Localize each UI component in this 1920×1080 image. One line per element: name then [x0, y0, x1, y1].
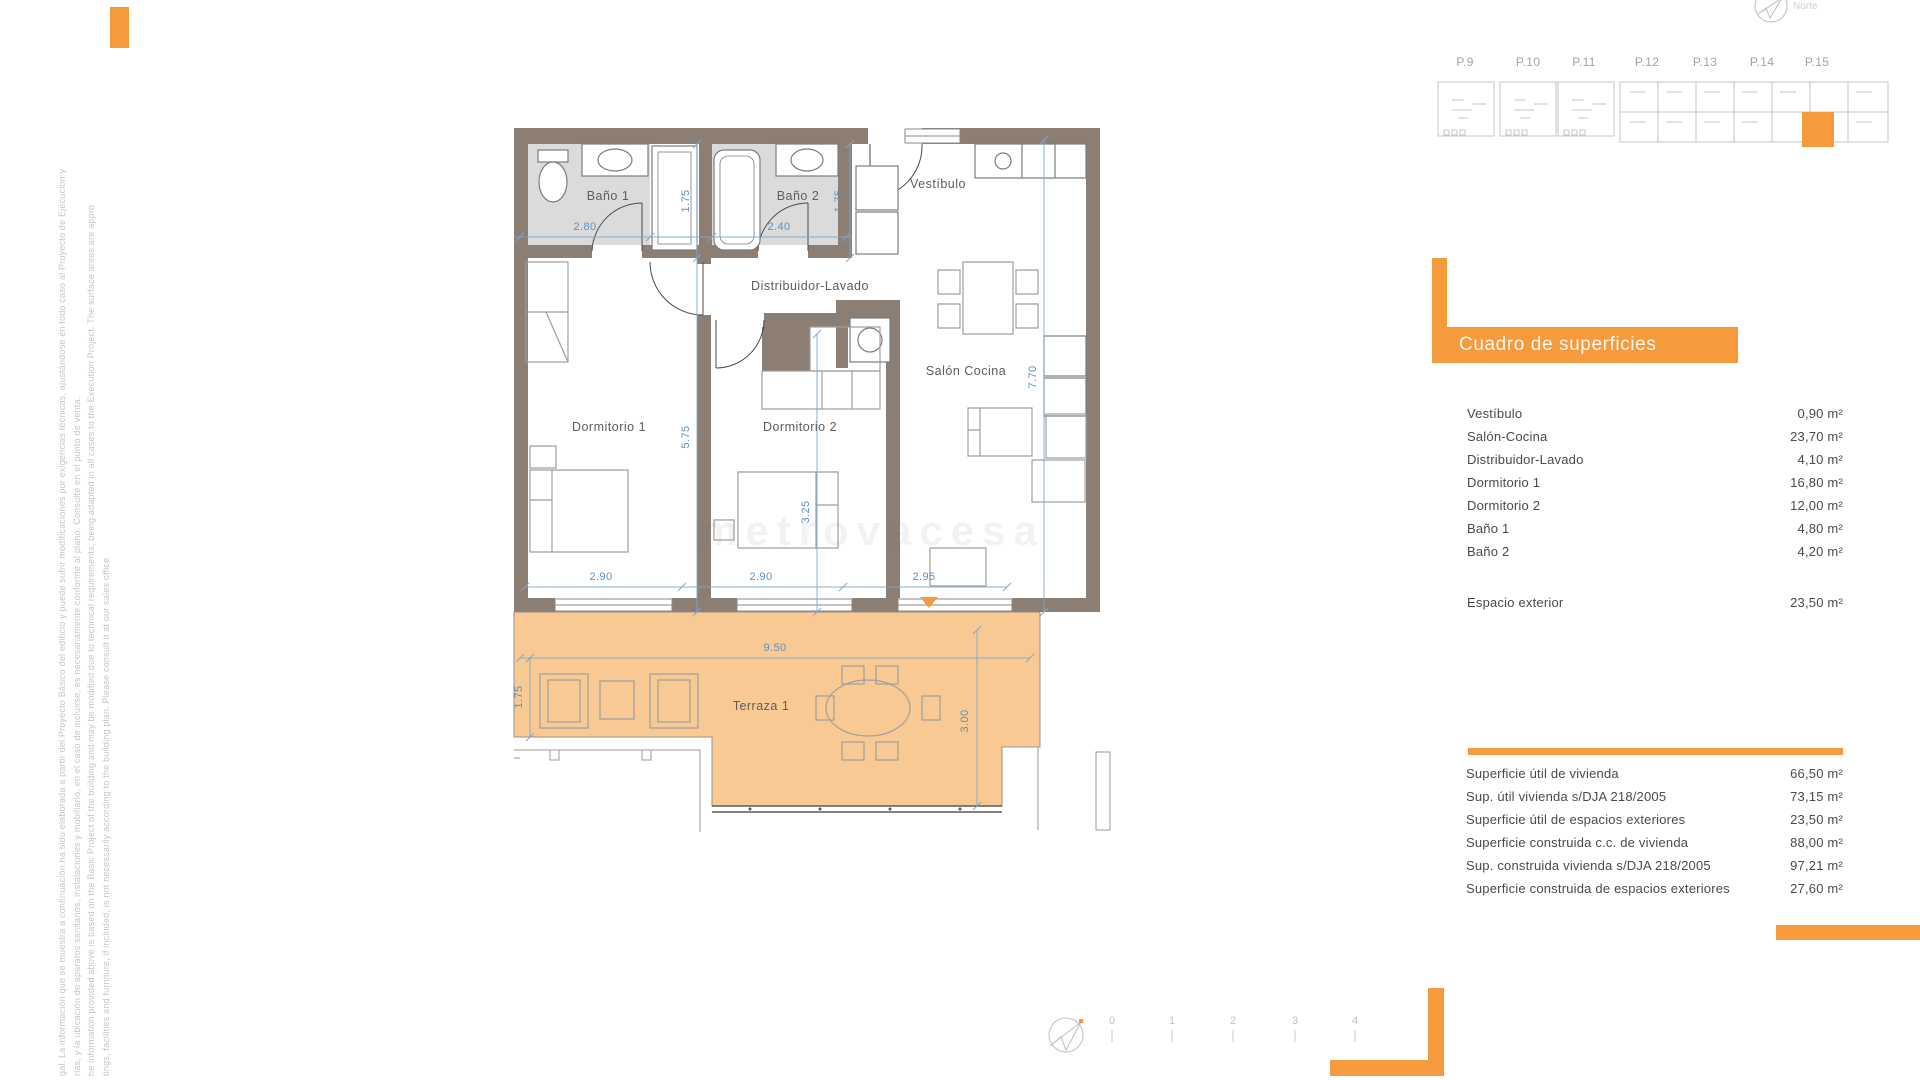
disclaimer-line: gal. La información que se muestra a con… [55, 61, 70, 1076]
north-compass-icon [1755, 0, 1787, 22]
table-row: Salón-Cocina23,70 m² [1467, 425, 1843, 448]
kitchen-counter-icon [975, 144, 1086, 178]
decor-top-left-bar [110, 7, 129, 48]
table-row: Distribuidor-Lavado4,10 m² [1467, 448, 1843, 471]
row-value: 4,10 m² [1798, 452, 1843, 467]
dim-dorm1-w: 2.90 [589, 571, 612, 583]
table-row: Dormitorio 212,00 m² [1467, 494, 1843, 517]
table-row: Baño 14,80 m² [1467, 517, 1843, 540]
row-value: 23,50 m² [1790, 595, 1843, 610]
sink1-icon [598, 149, 632, 171]
toilet-tank-icon [538, 150, 568, 162]
room-label-terraza: Terraza 1 [733, 699, 790, 713]
bed1-icon [530, 470, 628, 552]
key-plan-block-p12-p15 [1620, 82, 1888, 147]
highlighted-unit [1802, 112, 1834, 147]
row-label: Sup. construida vivienda s/DJA 218/2005 [1466, 858, 1711, 873]
key-plan-label-p14: P.14 [1750, 55, 1774, 69]
room-label-bano1: Baño 1 [587, 189, 630, 203]
floor-plan: metrovacesa 2.80 2.40 1.75 1.75 5.75 3.2… [513, 128, 1110, 832]
dim-salon-w: 2.95 [912, 571, 935, 583]
sink2-icon [791, 149, 823, 171]
row-value: 23,50 m² [1790, 812, 1843, 827]
row-label: Sup. útil vivienda s/DJA 218/2005 [1466, 789, 1666, 804]
scale-tick-2: 2 [1230, 1015, 1236, 1027]
row-label: Superficie construida de espacios exteri… [1466, 881, 1730, 896]
dim-bano2-h: 1.75 [833, 189, 845, 212]
sofa-icon [968, 408, 1032, 456]
row-value: 4,80 m² [1798, 521, 1843, 536]
row-label: Espacio exterior [1467, 595, 1563, 610]
key-plan-p9 [1438, 82, 1494, 136]
row-label: Vestíbulo [1467, 406, 1522, 421]
scale-tick-3: 3 [1292, 1015, 1298, 1027]
table-row: Sup. útil vivienda s/DJA 218/200573,15 m… [1466, 785, 1843, 808]
row-label: Superficie útil de vivienda [1466, 766, 1619, 781]
scale-bar: 0 1 2 3 4 [1109, 1015, 1358, 1042]
dim-terraza-w: 9.50 [763, 642, 786, 654]
decor-bottom-l-vertical [1428, 988, 1444, 1076]
row-value: 66,50 m² [1790, 766, 1843, 781]
disclaimer-line: he information provided above is based o… [84, 61, 99, 1076]
row-value: 23,70 m² [1790, 429, 1843, 444]
surfaces-title: Cuadro de superficies [1447, 334, 1656, 356]
disclaimer-line: rias, y la ubicación de aparatos sanitar… [70, 61, 85, 1076]
toilet-icon [539, 162, 567, 202]
row-value: 12,00 m² [1790, 498, 1843, 513]
table-row: Baño 24,20 m² [1467, 540, 1843, 563]
decor-bottom-l-horizontal [1330, 1060, 1428, 1076]
surfaces-table: Vestíbulo0,90 m² Salón-Cocina23,70 m² Di… [1467, 402, 1843, 614]
row-value: 73,15 m² [1790, 789, 1843, 804]
row-label: Baño 2 [1467, 544, 1509, 559]
table-row: Dormitorio 116,80 m² [1467, 471, 1843, 494]
table-row-espacio-exterior: Espacio exterior23,50 m² [1467, 591, 1843, 614]
dim-salon-h: 7.70 [1027, 365, 1039, 388]
row-label: Salón-Cocina [1467, 429, 1547, 444]
surfaces-title-banner: Cuadro de superficies [1447, 327, 1738, 363]
table-row: Superficie construida de espacios exteri… [1466, 877, 1843, 900]
row-label: Dormitorio 2 [1467, 498, 1540, 513]
table-row: Superficie construida c.c. de vivienda88… [1466, 831, 1843, 854]
dim-dorm2-w: 2.90 [749, 571, 772, 583]
table-row: Vestíbulo0,90 m² [1467, 402, 1843, 425]
dim-dorm2-h: 3.25 [800, 500, 812, 523]
row-value: 97,21 m² [1790, 858, 1843, 873]
key-plan-p10 [1500, 82, 1556, 136]
row-value: 4,20 m² [1798, 544, 1843, 559]
scale-compass-icon [1049, 1018, 1083, 1052]
dim-bano2-w: 2.40 [767, 221, 790, 233]
key-plan-label-p13: P.13 [1693, 55, 1717, 69]
room-label-dormitorio1: Dormitorio 1 [572, 420, 646, 434]
dim-terraza-h-left: 1.75 [513, 685, 525, 708]
dim-dorm1-h: 5.75 [680, 425, 692, 448]
row-label: Superficie construida c.c. de vivienda [1466, 835, 1688, 850]
room-label-vestibulo: Vestíbulo [910, 177, 966, 191]
table-row: Superficie útil de espacios exteriores23… [1466, 808, 1843, 831]
row-value: 27,60 m² [1790, 881, 1843, 896]
dining-table-icon [963, 262, 1013, 334]
room-label-dormitorio2: Dormitorio 2 [763, 420, 837, 434]
watermark: metrovacesa [700, 507, 1045, 554]
key-plan-p11 [1558, 82, 1614, 136]
key-plan-label-p11: P.11 [1572, 55, 1595, 69]
row-value: 16,80 m² [1790, 475, 1843, 490]
row-label: Dormitorio 1 [1467, 475, 1540, 490]
row-label: Baño 1 [1467, 521, 1509, 536]
decor-title-corner-bar [1432, 258, 1447, 363]
scale-tick-0: 0 [1109, 1015, 1115, 1027]
table-row: Sup. construida vivienda s/DJA 218/20059… [1466, 854, 1843, 877]
dim-bano1-w: 2.80 [573, 221, 596, 233]
row-value: 0,90 m² [1798, 406, 1843, 421]
north-label: Norte [1793, 1, 1818, 12]
summary-top-rule [1468, 748, 1843, 755]
cabinet-icon [856, 166, 898, 210]
key-plan-labels: P.9 P.10 P.11 P.12 P.13 P.14 P.15 [1456, 55, 1829, 69]
key-plans [1438, 82, 1888, 147]
key-plan-label-p10: P.10 [1516, 55, 1540, 69]
key-plan-label-p12: P.12 [1635, 55, 1659, 69]
dim-terraza-h-right: 3.00 [959, 709, 971, 732]
scale-tick-4: 4 [1352, 1015, 1358, 1027]
disclaimer-line: tings, facilities and furniture, if incl… [99, 61, 114, 1076]
table-row: Superficie útil de vivienda66,50 m² [1466, 762, 1843, 785]
row-label: Distribuidor-Lavado [1467, 452, 1584, 467]
room-label-distribuidor: Distribuidor-Lavado [751, 279, 869, 293]
legal-disclaimer: gal. La información que se muestra a con… [55, 61, 113, 1076]
room-label-bano2: Baño 2 [777, 189, 820, 203]
dim-bano1-h: 1.75 [680, 189, 692, 212]
key-plan-label-p9: P.9 [1456, 55, 1473, 69]
room-label-salon: Salón Cocina [926, 364, 1006, 378]
decor-bottom-right-bar [1776, 925, 1920, 940]
row-value: 88,00 m² [1790, 835, 1843, 850]
row-label: Superficie útil de espacios exteriores [1466, 812, 1685, 827]
key-plan-label-p15: P.15 [1805, 55, 1829, 69]
summary-table: Superficie útil de vivienda66,50 m² Sup.… [1466, 762, 1843, 900]
scale-tick-1: 1 [1169, 1015, 1175, 1027]
